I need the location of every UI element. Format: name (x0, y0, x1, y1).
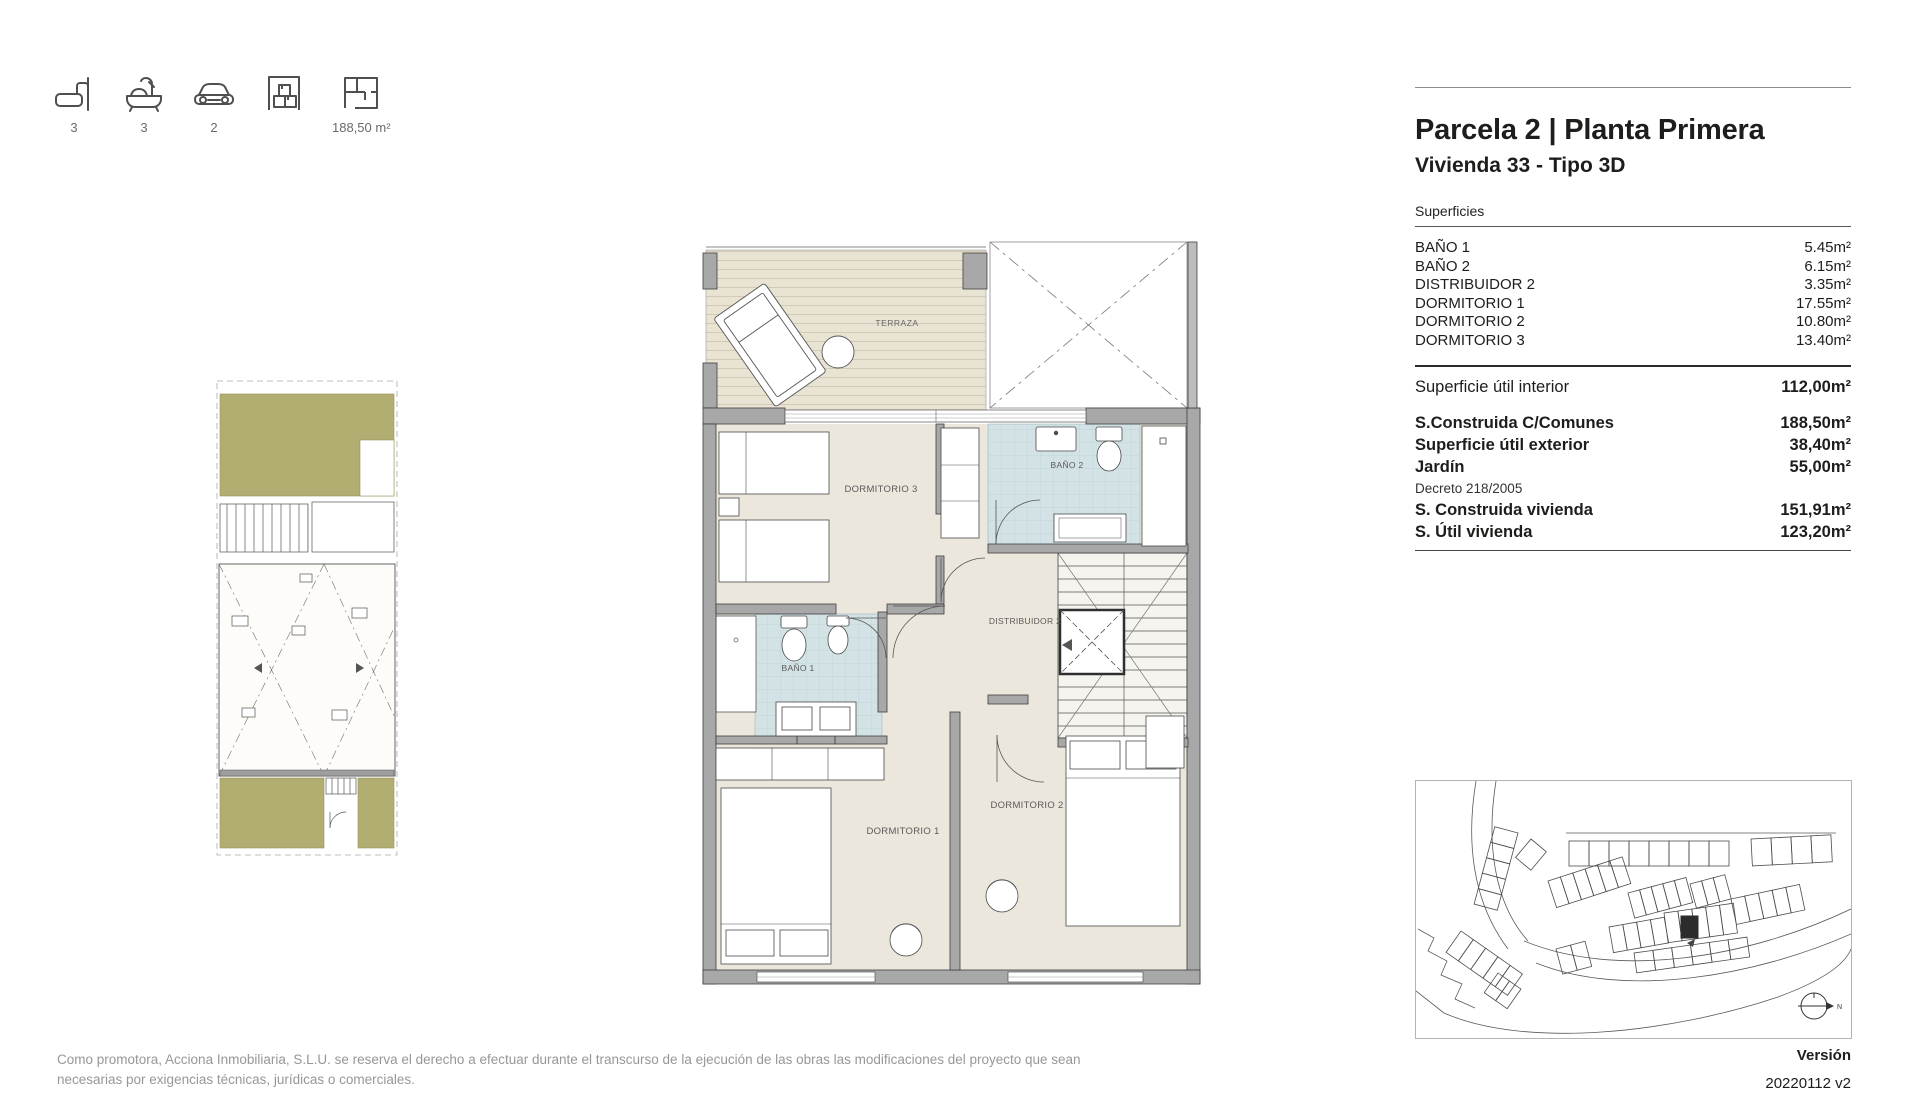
site-roads (1416, 781, 1851, 1033)
staircase (1058, 553, 1187, 738)
surfaces-rule (1415, 226, 1851, 227)
pergola-area (990, 242, 1187, 408)
surface-room-value: 10.80m² (1796, 313, 1851, 332)
surface-room-value: 3.35m² (1804, 276, 1851, 295)
total-row: S.Construida C/Comunes 188,50m² (1415, 412, 1851, 434)
surface-row: DORMITORIO 3 13.40m² (1415, 332, 1851, 351)
summary-storage (262, 70, 306, 135)
total-row: Jardín 55,00m² (1415, 456, 1851, 478)
info-panel: Parcela 2 | Planta Primera Vivienda 33 -… (1415, 0, 1851, 551)
room-label-bano2: BAÑO 2 (1051, 460, 1084, 470)
surfaces-room-list: BAÑO 1 5.45m² BAÑO 2 6.15m² DISTRIBUIDOR… (1415, 239, 1851, 351)
north-label: N (1837, 1004, 1842, 1011)
decree-label: Decreto 218/2005 (1415, 478, 1522, 499)
compass-icon: N (1798, 993, 1842, 1019)
page-subtitle: Vivienda 33 - Tipo 3D (1415, 154, 1851, 178)
total-row: Superficie útil interior 112,00m² (1415, 376, 1851, 398)
surface-room-value: 6.15m² (1804, 258, 1851, 277)
room-label-dormitorio3: DORMITORIO 3 (844, 484, 917, 495)
floor-plan: TERRAZA (700, 228, 1203, 998)
stairs-strip (220, 502, 394, 552)
total-value: 123,20m² (1780, 521, 1851, 543)
page-title: Parcela 2 | Planta Primera (1415, 114, 1851, 147)
summary-bathrooms: 3 (122, 70, 166, 135)
room-label-dormitorio1: DORMITORIO 1 (866, 826, 939, 837)
surface-room-label: BAÑO 2 (1415, 258, 1470, 277)
surface-room-value: 17.55m² (1796, 295, 1851, 314)
room-label-terraza: TERRAZA (875, 318, 918, 328)
mini-roof-plan (214, 378, 400, 858)
total-value: 188,50m² (1780, 412, 1851, 434)
site-houses (1446, 827, 1832, 1009)
surface-room-value: 13.40m² (1796, 332, 1851, 351)
shower-bano1 (716, 616, 756, 712)
disclaimer-line-2: necesarias por exigencias técnicas, jurí… (57, 1070, 1117, 1090)
total-label: Superficie útil exterior (1415, 434, 1589, 456)
total-value: 151,91m² (1780, 499, 1851, 521)
room-label-dormitorio2: DORMITORIO 2 (990, 800, 1063, 811)
total-value: 112,00m² (1781, 376, 1851, 398)
surface-room-label: BAÑO 1 (1415, 239, 1470, 258)
roof-area (219, 564, 395, 776)
room-label-distribuidor2: DISTRIBUIDOR 2 (989, 616, 1061, 626)
decree-row: Decreto 218/2005 (1415, 478, 1851, 499)
surface-room-label: DISTRIBUIDOR 2 (1415, 276, 1535, 295)
version-label: Versión (1415, 1042, 1851, 1070)
summary-icons-row: 3 3 2 (52, 70, 417, 135)
total-label: S. Útil vivienda (1415, 521, 1532, 543)
total-label: Superficie útil interior (1415, 376, 1569, 398)
summary-built-area-value: 188,50 m² (332, 120, 391, 135)
version-value: 20220112 v2 (1415, 1070, 1851, 1098)
total-value: 38,40m² (1790, 434, 1851, 456)
summary-bathrooms-count: 3 (140, 120, 147, 135)
summary-bedrooms: 3 (52, 70, 96, 135)
surface-row: BAÑO 1 5.45m² (1415, 239, 1851, 258)
terrace-table (822, 336, 854, 368)
total-label: Jardín (1415, 456, 1465, 478)
total-row: S. Construida vivienda 151,91m² (1415, 499, 1851, 521)
car-icon (192, 70, 236, 116)
version-block: Versión 20220112 v2 (1415, 1042, 1851, 1098)
summary-parking-count: 2 (210, 120, 217, 135)
brochure-page: { "header": { "title": "Parcela 2 | Plan… (0, 0, 1920, 1080)
total-value: 55,00m² (1790, 456, 1851, 478)
surface-row: DISTRIBUIDOR 2 3.35m² (1415, 276, 1851, 295)
room-terraza: TERRAZA (706, 247, 986, 410)
surfaces-section-title: Superficies (1415, 203, 1851, 219)
surface-row: DORMITORIO 2 10.80m² (1415, 313, 1851, 332)
totals-rule (1415, 365, 1851, 367)
highlighted-unit (1681, 916, 1698, 938)
garden-top (220, 394, 394, 496)
storage-icon (262, 70, 306, 116)
summary-bedrooms-count: 3 (70, 120, 77, 135)
room-label-bano1: BAÑO 1 (782, 663, 815, 673)
total-label: S. Construida vivienda (1415, 499, 1593, 521)
surface-room-label: DORMITORIO 1 (1415, 295, 1525, 314)
top-rule (1415, 87, 1851, 88)
floorplan-icon (339, 70, 383, 116)
surface-row: BAÑO 2 6.15m² (1415, 258, 1851, 277)
total-row: Superficie útil exterior 38,40m² (1415, 434, 1851, 456)
legal-disclaimer: Como promotora, Acciona Inmobiliaria, S.… (57, 1050, 1117, 1090)
surfaces-totals-list: Superficie útil interior 112,00m² S.Cons… (1415, 376, 1851, 543)
bottom-rule (1415, 550, 1851, 552)
total-label: S.Construida C/Comunes (1415, 412, 1614, 434)
summary-parking: 2 (192, 70, 236, 135)
surface-room-label: DORMITORIO 3 (1415, 332, 1525, 351)
site-plan: N (1415, 780, 1852, 1039)
surface-room-label: DORMITORIO 2 (1415, 313, 1525, 332)
surface-room-value: 5.45m² (1804, 239, 1851, 258)
total-row: S. Útil vivienda 123,20m² (1415, 521, 1851, 543)
surface-row: DORMITORIO 1 17.55m² (1415, 295, 1851, 314)
bath-icon (122, 70, 166, 116)
disclaimer-line-1: Como promotora, Acciona Inmobiliaria, S.… (57, 1050, 1117, 1070)
bed-icon (52, 70, 96, 116)
garden-bottom (220, 770, 394, 848)
summary-built-area: 188,50 m² (332, 70, 391, 135)
